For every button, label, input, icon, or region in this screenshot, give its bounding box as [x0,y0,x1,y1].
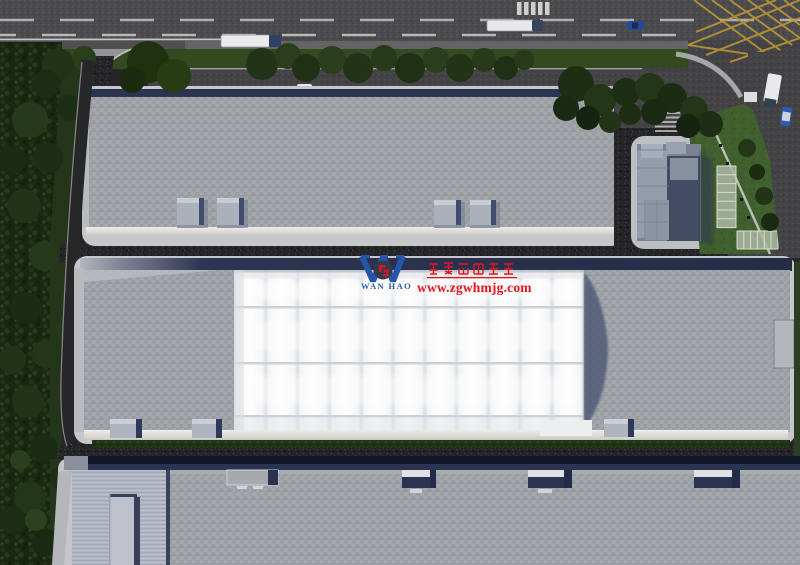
svg-text:WAN HAO: WAN HAO [361,281,412,291]
svg-text:www.zgwhmjg.com: www.zgwhmjg.com [417,280,532,295]
